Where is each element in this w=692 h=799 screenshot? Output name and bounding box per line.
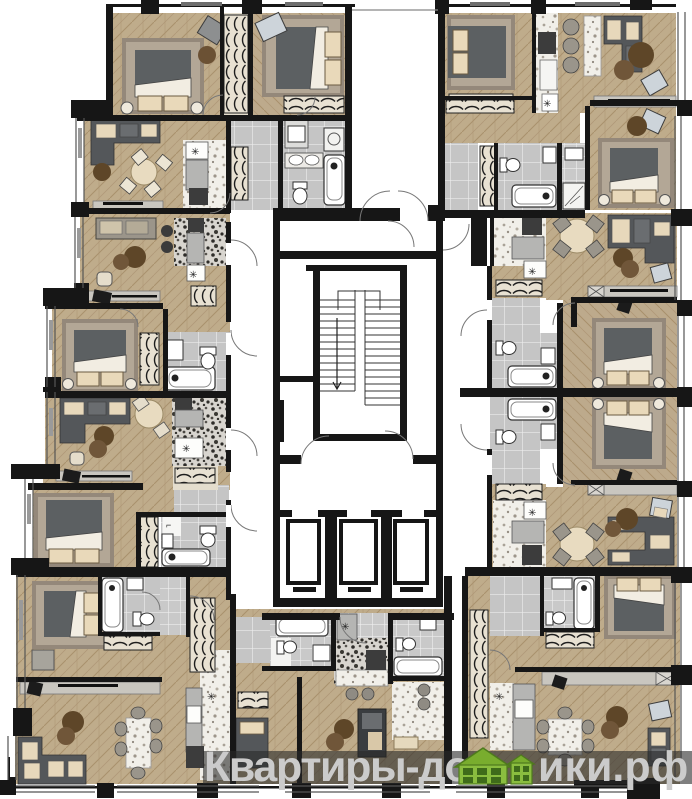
svg-text:✳: ✳ bbox=[495, 692, 503, 703]
svg-text:✳: ✳ bbox=[207, 692, 215, 703]
svg-text:✳: ✳ bbox=[528, 508, 536, 519]
svg-text:✳: ✳ bbox=[189, 270, 197, 281]
svg-text:Квартиры-до: Квартиры-до bbox=[204, 743, 469, 791]
svg-text:⌐: ⌐ bbox=[166, 520, 171, 530]
svg-text:ики.рф: ики.рф bbox=[538, 743, 688, 791]
svg-text:✳: ✳ bbox=[543, 99, 551, 110]
svg-text:✳: ✳ bbox=[528, 267, 536, 278]
svg-text:✳: ✳ bbox=[191, 147, 199, 158]
svg-text:✳: ✳ bbox=[182, 444, 190, 455]
